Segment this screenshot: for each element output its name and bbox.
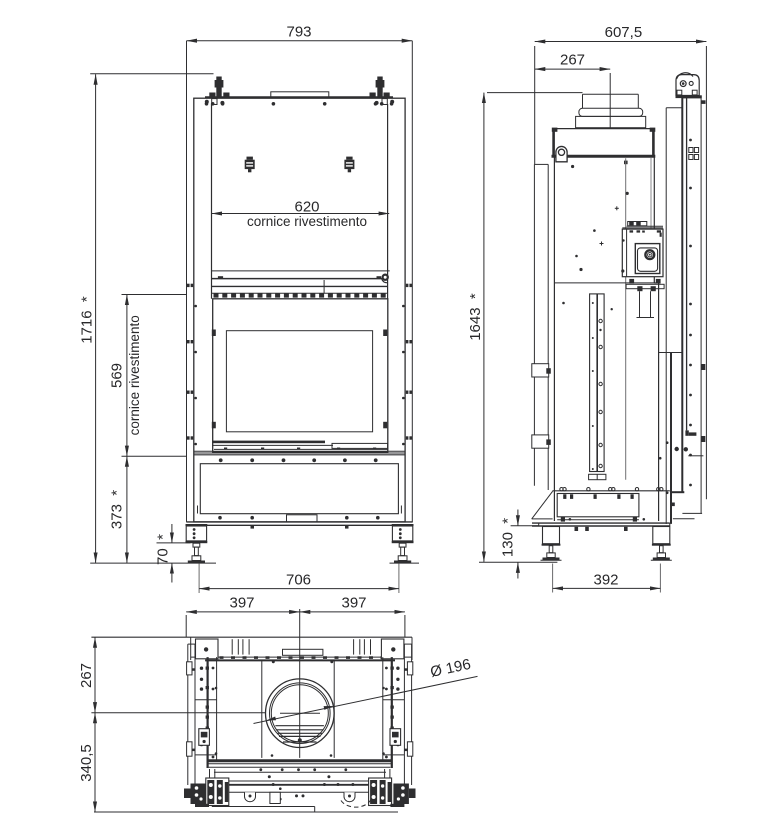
svg-text:620: 620 — [294, 198, 319, 215]
svg-text:569: 569 — [108, 363, 125, 388]
svg-text:267: 267 — [560, 52, 585, 69]
svg-text:706: 706 — [286, 572, 311, 589]
svg-text:373 *: 373 * — [108, 490, 125, 529]
svg-text:793: 793 — [286, 24, 311, 41]
svg-text:607,5: 607,5 — [605, 24, 643, 41]
svg-text:1643 *: 1643 * — [467, 293, 484, 341]
svg-text:cornice rivestimento: cornice rivestimento — [247, 214, 367, 229]
svg-text:70 *: 70 * — [154, 534, 171, 565]
svg-text:cornice rivestimento: cornice rivestimento — [127, 315, 142, 435]
svg-text:Ø 196: Ø 196 — [429, 656, 473, 681]
svg-text:1716 *: 1716 * — [78, 296, 95, 344]
svg-text:397: 397 — [341, 594, 366, 611]
svg-text:130 *: 130 * — [499, 518, 516, 557]
svg-text:397: 397 — [229, 594, 254, 611]
svg-text:392: 392 — [593, 571, 618, 588]
svg-text:340,5: 340,5 — [78, 744, 95, 782]
svg-text:267: 267 — [78, 663, 95, 688]
